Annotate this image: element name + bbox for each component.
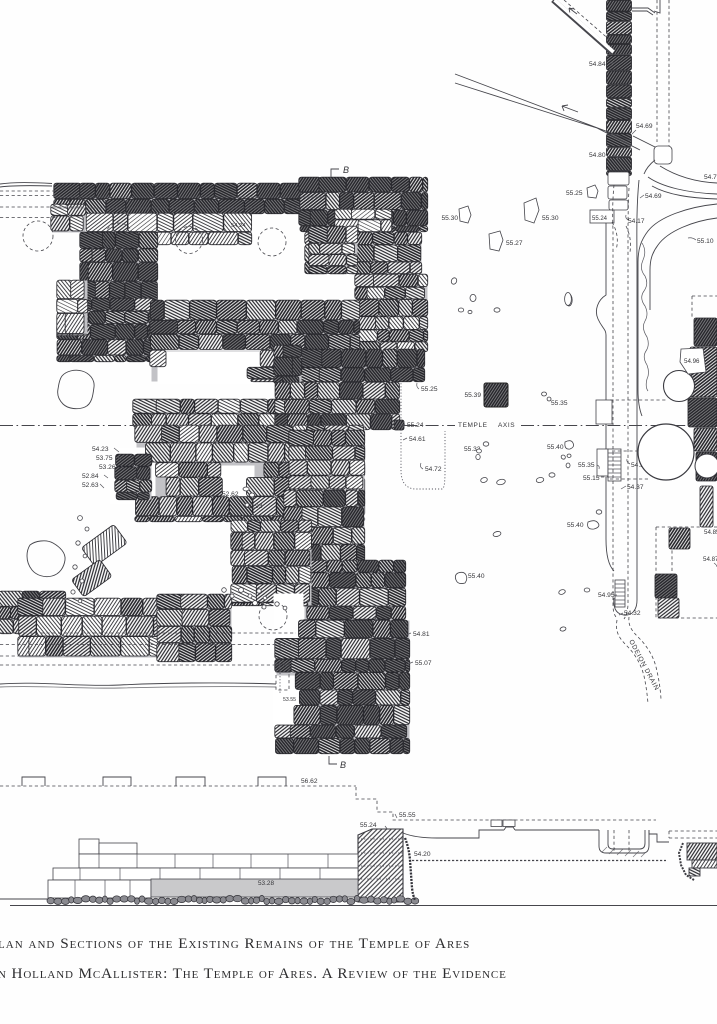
svg-text:54.23: 54.23 <box>92 446 109 453</box>
svg-text:54.72: 54.72 <box>425 466 442 473</box>
svg-text:54.81: 54.81 <box>413 631 430 638</box>
svg-text:54.61: 54.61 <box>409 436 426 443</box>
svg-text:54.37: 54.37 <box>627 484 644 491</box>
svg-text:B: B <box>343 165 349 175</box>
svg-text:54.75: 54.75 <box>704 174 717 181</box>
svg-text:55.25: 55.25 <box>566 190 583 197</box>
svg-text:52.62: 52.62 <box>222 491 239 498</box>
svg-text:55.40: 55.40 <box>547 444 564 451</box>
svg-text:55.24: 55.24 <box>592 216 608 222</box>
svg-text:n Holland McAllister: The Temp: n Holland McAllister: The Temple of Ares… <box>0 965 507 982</box>
svg-text:54.69: 54.69 <box>645 193 662 200</box>
svg-text:53.55: 53.55 <box>283 697 296 703</box>
svg-text:TEMPLE: TEMPLE <box>458 422 488 429</box>
svg-text:55.10: 55.10 <box>697 238 714 245</box>
svg-text:53.75: 53.75 <box>96 455 113 462</box>
svg-text:55.27: 55.27 <box>506 240 523 247</box>
svg-text:54.87: 54.87 <box>703 556 717 563</box>
svg-text:55.30: 55.30 <box>441 215 458 222</box>
svg-text:54.85: 54.85 <box>704 529 717 536</box>
svg-text:53.28: 53.28 <box>258 880 274 887</box>
svg-text:53.26: 53.26 <box>99 464 116 471</box>
svg-text:52.84: 52.84 <box>82 473 99 480</box>
svg-text:54.96: 54.96 <box>684 358 700 365</box>
svg-text:AXIS: AXIS <box>498 422 515 429</box>
svg-text:55.55: 55.55 <box>399 812 416 819</box>
svg-text:55.39: 55.39 <box>464 392 481 399</box>
svg-text:54.17: 54.17 <box>628 218 645 225</box>
svg-text:55.07: 55.07 <box>415 660 432 667</box>
svg-text:56.62: 56.62 <box>301 778 318 785</box>
svg-text:55.24: 55.24 <box>360 822 377 829</box>
svg-text:lan and Sections of the Existi: lan and Sections of the Existing Remains… <box>0 935 470 952</box>
svg-text:54.84: 54.84 <box>589 61 606 68</box>
svg-text:54.24: 54.24 <box>231 223 246 229</box>
svg-text:54.69: 54.69 <box>636 123 653 130</box>
svg-text:55.15: 55.15 <box>583 475 600 482</box>
svg-text:B: B <box>340 760 346 770</box>
svg-text:55.40: 55.40 <box>468 573 485 580</box>
svg-text:55.30: 55.30 <box>542 215 559 222</box>
svg-text:54.80: 54.80 <box>589 152 606 159</box>
svg-text:55.35: 55.35 <box>578 462 595 469</box>
svg-text:55.25: 55.25 <box>421 386 438 393</box>
svg-text:54.95: 54.95 <box>598 592 615 599</box>
svg-text:54.32: 54.32 <box>624 610 641 617</box>
svg-text:55.35: 55.35 <box>551 400 568 407</box>
svg-text:55.24: 55.24 <box>407 422 424 429</box>
svg-text:55.40: 55.40 <box>567 522 584 529</box>
svg-text:54.20: 54.20 <box>414 851 431 858</box>
svg-text:52.63: 52.63 <box>82 482 99 489</box>
